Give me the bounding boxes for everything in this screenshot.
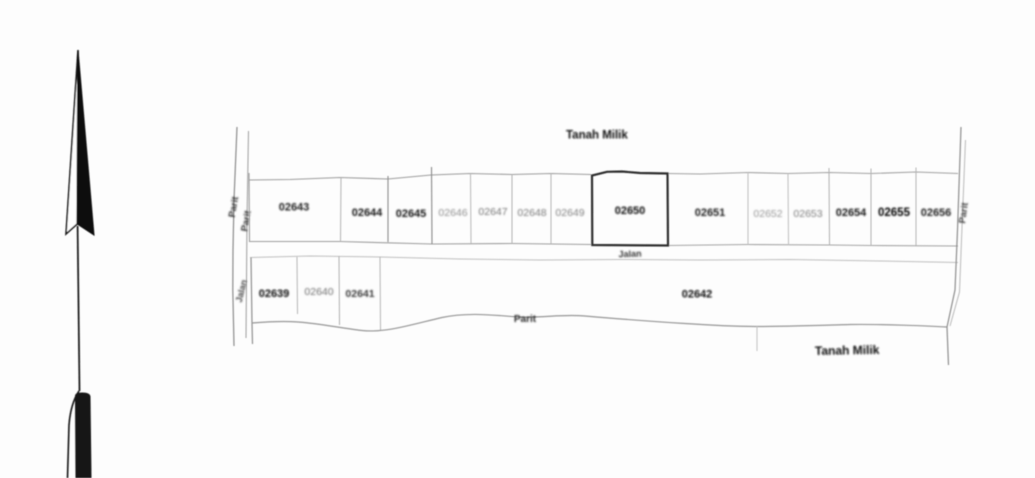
svg-text:02641: 02641 <box>345 288 374 300</box>
svg-text:Parit: Parit <box>239 209 254 233</box>
svg-text:02644: 02644 <box>352 207 383 219</box>
svg-text:Parit: Parit <box>957 201 971 224</box>
svg-text:02640: 02640 <box>304 286 333 298</box>
svg-text:02654: 02654 <box>836 207 867 219</box>
svg-text:02639: 02639 <box>259 288 290 300</box>
svg-text:02656: 02656 <box>921 207 952 219</box>
svg-text:02645: 02645 <box>396 208 427 220</box>
svg-text:Tanah Milik: Tanah Milik <box>566 130 628 142</box>
svg-text:Jalan: Jalan <box>618 249 641 260</box>
svg-text:Parit: Parit <box>514 314 537 325</box>
svg-text:02651: 02651 <box>695 207 726 219</box>
svg-text:02648: 02648 <box>517 207 546 219</box>
svg-text:02655: 02655 <box>878 207 911 219</box>
svg-text:02649: 02649 <box>555 207 584 219</box>
svg-text:Tanah Milik: Tanah Milik <box>815 343 880 358</box>
svg-text:02647: 02647 <box>478 206 507 218</box>
svg-text:02646: 02646 <box>438 207 467 219</box>
svg-text:02643: 02643 <box>279 202 310 214</box>
svg-text:02652: 02652 <box>753 208 782 220</box>
svg-text:Parit: Parit <box>227 195 242 219</box>
svg-text:02642: 02642 <box>682 289 713 301</box>
svg-text:02650: 02650 <box>615 205 646 217</box>
svg-text:02653: 02653 <box>793 208 822 220</box>
